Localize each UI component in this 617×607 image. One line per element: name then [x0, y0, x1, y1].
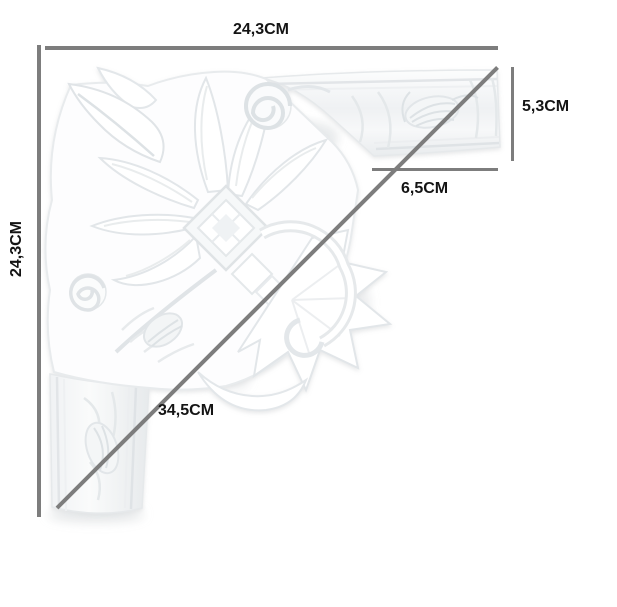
corner-moulding-image [0, 0, 617, 607]
dim-label-left-height: 24,3CM [8, 209, 26, 289]
moulding-bottom-arm [50, 374, 149, 513]
dim-label-right-profile-height: 5,3CM [522, 98, 569, 116]
dim-label-inner-profile-width: 6,5CM [401, 180, 448, 198]
dim-line-left-height [37, 45, 41, 517]
dim-line-top-width [45, 46, 498, 50]
dim-label-diagonal-length: 34,5CM [158, 402, 214, 420]
dim-line-right-profile-height [511, 67, 514, 161]
dim-label-top-width: 24,3CM [211, 21, 311, 39]
dimension-diagram: 24,3CM 24,3CM 5,3CM 6,5CM 34,5CM [0, 0, 617, 607]
